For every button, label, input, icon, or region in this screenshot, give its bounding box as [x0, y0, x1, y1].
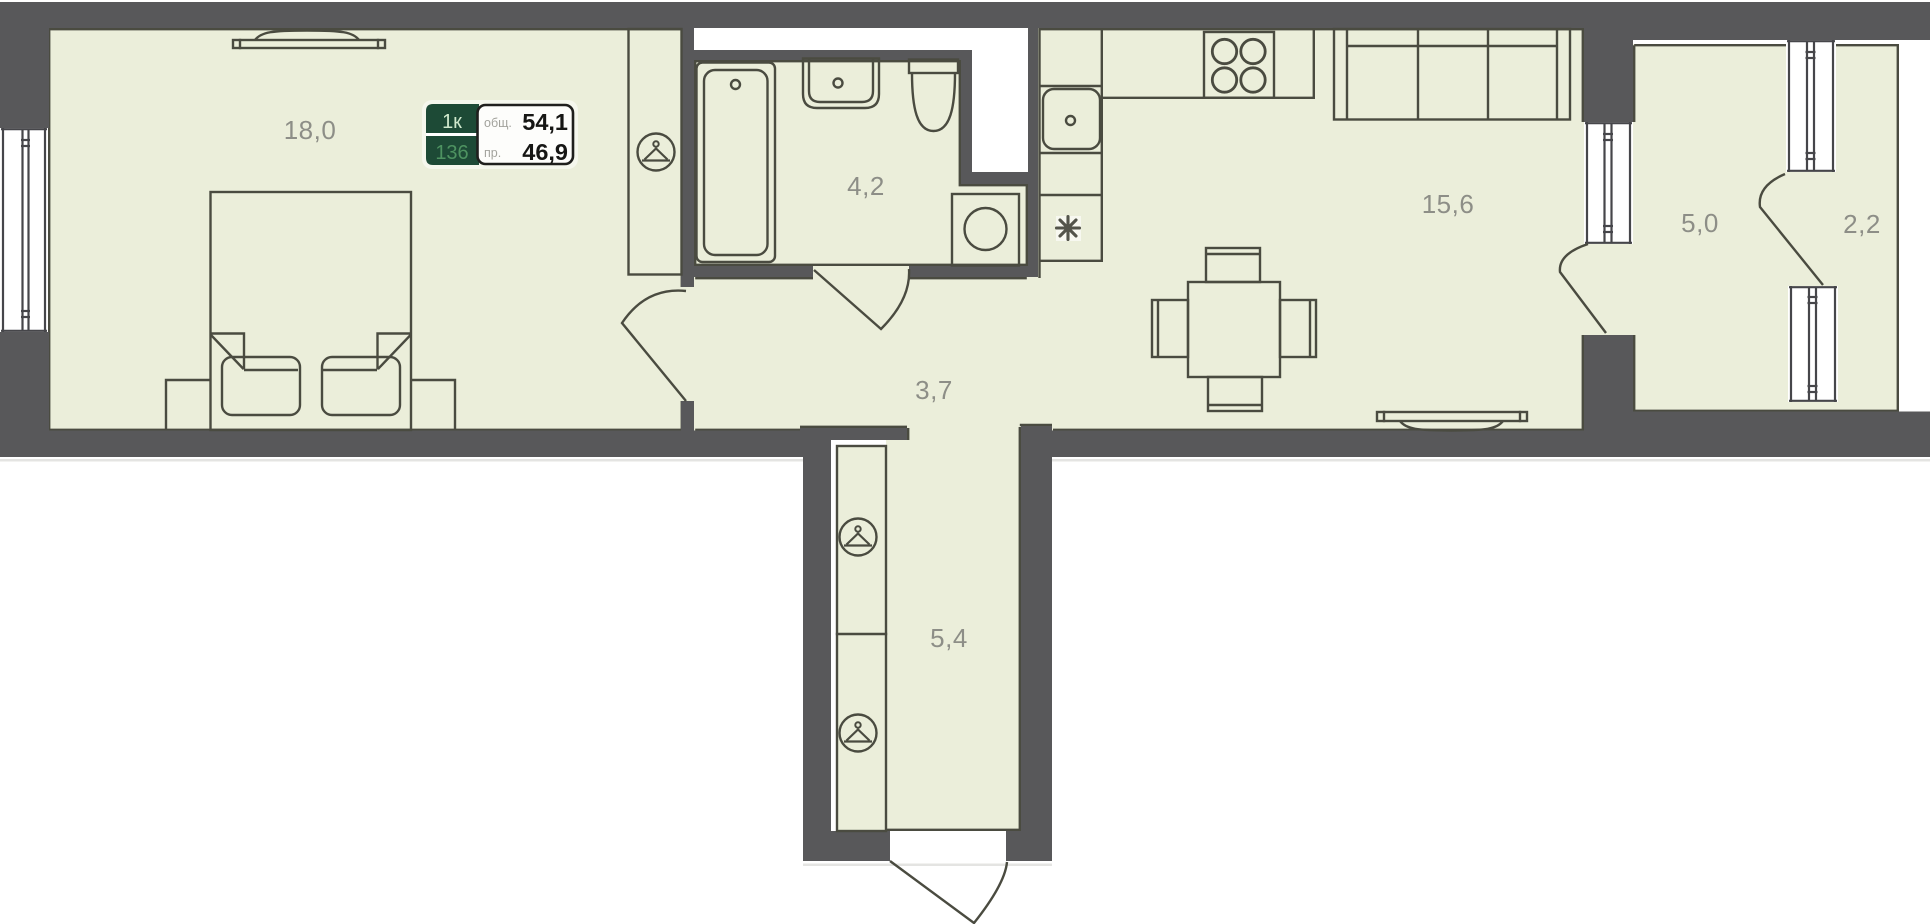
svg-text:5,0: 5,0: [1681, 208, 1719, 238]
svg-text:46,9: 46,9: [522, 139, 568, 165]
svg-text:54,1: 54,1: [522, 109, 568, 135]
svg-text:3,7: 3,7: [915, 375, 953, 405]
svg-text:15,6: 15,6: [1422, 189, 1475, 219]
svg-text:1к: 1к: [442, 111, 462, 133]
svg-text:2,2: 2,2: [1843, 209, 1881, 239]
svg-text:18,0: 18,0: [284, 115, 337, 145]
svg-text:4,2: 4,2: [847, 171, 885, 201]
svg-text:пр.: пр.: [484, 146, 501, 160]
svg-text:5,4: 5,4: [930, 623, 968, 653]
svg-text:136: 136: [435, 142, 468, 164]
svg-text:общ.: общ.: [484, 116, 512, 130]
